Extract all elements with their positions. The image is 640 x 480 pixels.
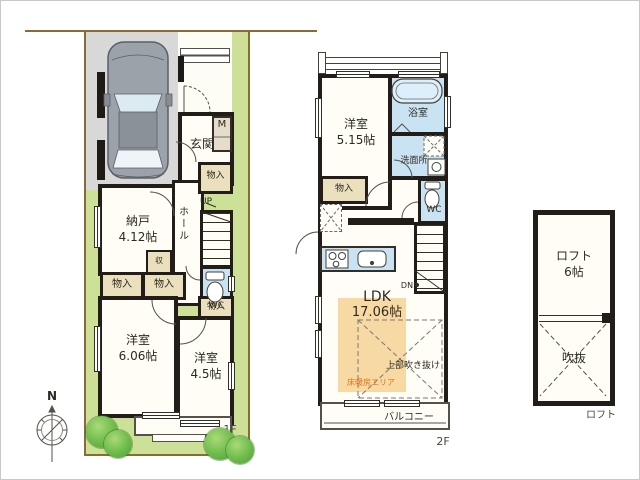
fence-post bbox=[178, 56, 184, 82]
label-loft-void: 吹抜 bbox=[548, 352, 600, 366]
window bbox=[444, 96, 451, 128]
label-bedroom2: 洋室 bbox=[182, 352, 230, 366]
floorplan-image: 玄関 M 納戸 4.12帖 ホール UP 物入 収 WC 物入 物入 物入 洋室… bbox=[0, 0, 640, 480]
window bbox=[315, 296, 322, 324]
compass-icon bbox=[37, 406, 67, 462]
kitchen-counter bbox=[320, 246, 396, 272]
label-ldk-size: 17.06帖 bbox=[345, 306, 409, 321]
window bbox=[228, 276, 235, 292]
window bbox=[398, 71, 440, 78]
tree bbox=[104, 430, 132, 458]
label-genkan: 玄関 bbox=[180, 138, 224, 152]
label-loft: ロフト bbox=[548, 250, 600, 264]
refrigerator-space bbox=[320, 204, 342, 232]
label-bedroom-2f-size: 5.15帖 bbox=[330, 134, 382, 148]
label-closet-b: 物入 bbox=[142, 279, 186, 291]
label-floor-2f: 2F bbox=[430, 436, 456, 449]
room-wc-2f bbox=[418, 178, 448, 224]
label-bedroom1-size: 6.06帖 bbox=[104, 350, 172, 364]
label-wc-2f: WC bbox=[423, 205, 445, 215]
label-bath: 浴室 bbox=[398, 108, 438, 120]
label-balcony: バルコニー bbox=[376, 412, 442, 424]
label-washroom: 洗面所 bbox=[390, 156, 438, 166]
fence-post bbox=[97, 72, 105, 118]
label-nando-size: 4.12帖 bbox=[104, 231, 172, 245]
loft-divider-rail bbox=[539, 315, 609, 322]
label-closet-c: 物入 bbox=[198, 302, 234, 312]
wall-segment bbox=[348, 218, 414, 225]
label-loft-floor: ロフト bbox=[584, 410, 618, 422]
label-closet-top: 物入 bbox=[198, 171, 233, 181]
label-bedroom1: 洋室 bbox=[104, 334, 172, 348]
window bbox=[180, 420, 220, 427]
terrace-step bbox=[152, 434, 206, 442]
window bbox=[344, 400, 380, 407]
window bbox=[315, 98, 322, 138]
room-bath bbox=[388, 74, 448, 136]
eaves-rail-post bbox=[440, 52, 448, 74]
label-north: N bbox=[42, 390, 62, 404]
label-ldk: LDK bbox=[345, 289, 409, 305]
approach-path bbox=[178, 32, 232, 116]
window bbox=[384, 400, 420, 407]
label-bedroom-2f: 洋室 bbox=[330, 118, 382, 132]
tree bbox=[226, 436, 254, 464]
window bbox=[142, 412, 180, 419]
label-floor-heating: 床暖房エリア bbox=[338, 378, 404, 387]
loft-outline bbox=[533, 210, 615, 406]
window bbox=[94, 206, 101, 248]
entrance-canopy bbox=[180, 48, 230, 63]
label-bedroom2-size: 4.5帖 bbox=[182, 368, 230, 382]
stairs-1f bbox=[200, 210, 233, 268]
label-meter: M bbox=[214, 119, 230, 131]
label-loft-size: 6帖 bbox=[548, 266, 600, 280]
label-closet-a: 物入 bbox=[100, 279, 144, 291]
eaves-rail bbox=[325, 57, 441, 70]
loft-divider-block bbox=[602, 313, 612, 323]
window bbox=[315, 330, 322, 358]
label-hall: ホール bbox=[176, 206, 188, 242]
label-void-above: 上部吹き抜け bbox=[382, 361, 444, 371]
fence-post bbox=[97, 140, 105, 180]
window bbox=[94, 326, 101, 372]
label-nando: 納戸 bbox=[104, 215, 172, 229]
stairs-2f bbox=[414, 222, 446, 294]
label-closet-2f: 物入 bbox=[322, 184, 366, 194]
label-shu: 収 bbox=[147, 256, 171, 265]
window bbox=[336, 71, 370, 78]
label-up: UP bbox=[194, 197, 218, 207]
